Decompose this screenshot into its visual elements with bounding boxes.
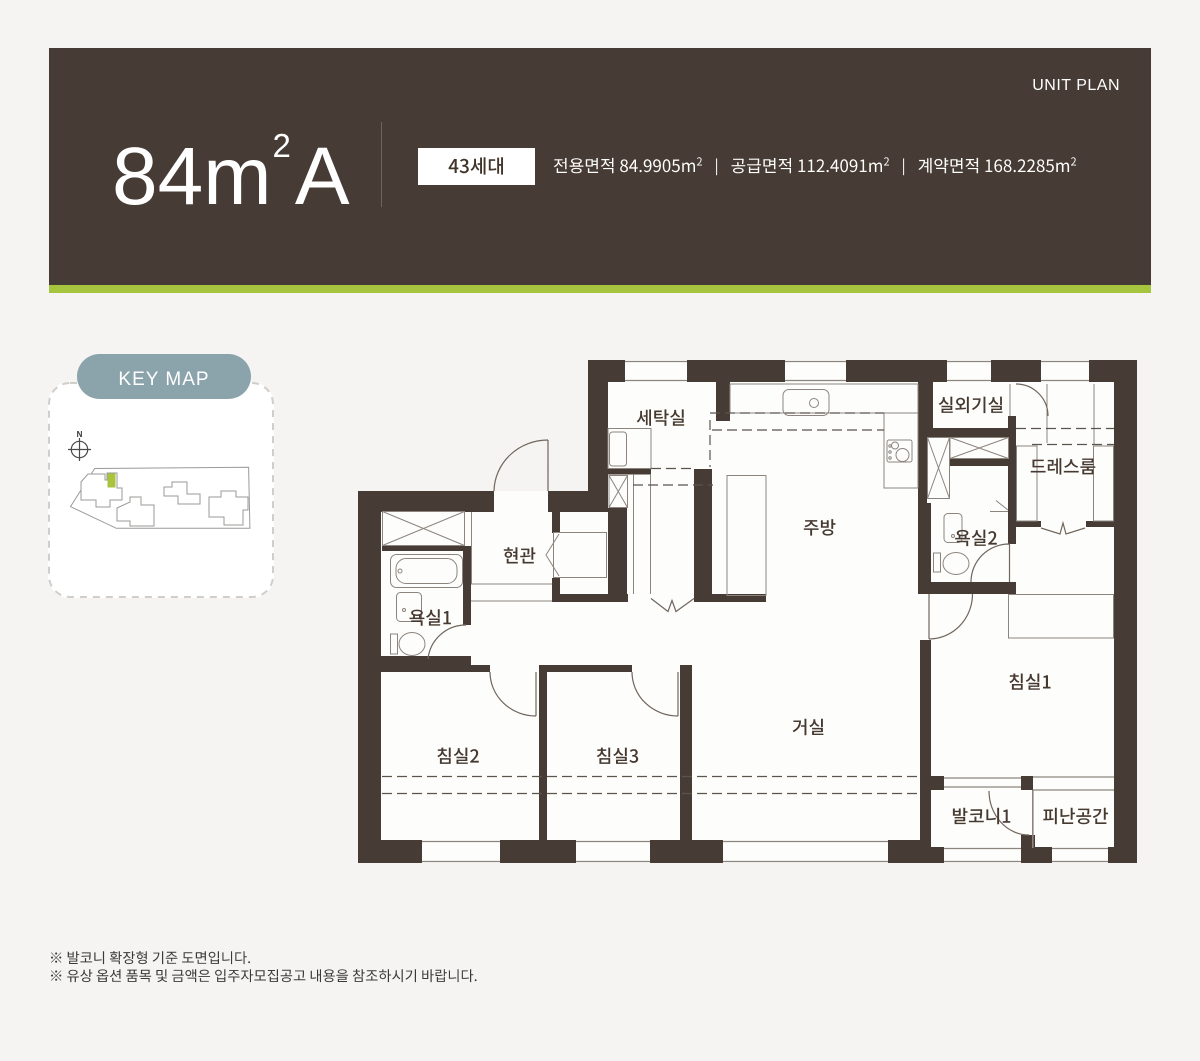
svg-text:N: N — [77, 430, 83, 439]
